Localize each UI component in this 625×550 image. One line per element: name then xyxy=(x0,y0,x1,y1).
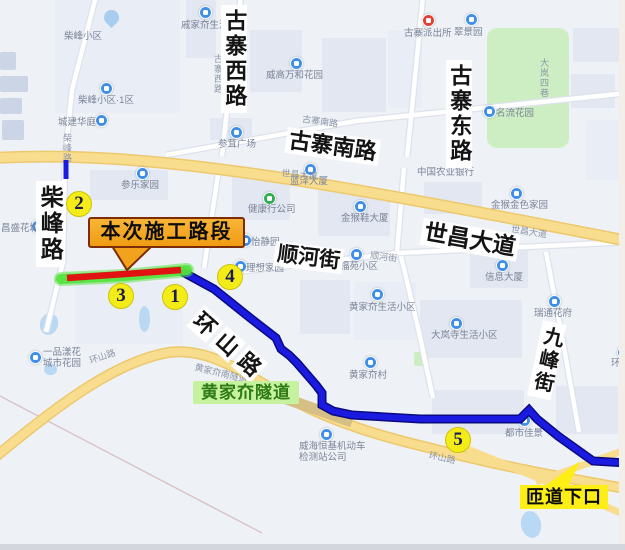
poi-label: 黄家夼生活小区 xyxy=(349,302,416,313)
poi-icon xyxy=(371,288,384,301)
poi-icon xyxy=(234,260,247,273)
poi-label: 健康行公司 xyxy=(248,204,296,215)
poi-label: 瑞通花府 xyxy=(534,308,572,319)
building-block xyxy=(250,30,302,92)
poi-label: 翠景园 xyxy=(454,27,483,38)
construction-callout: 本次施工路段 xyxy=(88,217,245,248)
route-line xyxy=(181,271,625,463)
building-block xyxy=(0,52,16,70)
road-name-layer: 古寨西路古寨东路古寨南路柴峰路世昌大道顺河街环山路九峰街 xyxy=(0,0,625,550)
road-label-small: 环山路 xyxy=(428,450,457,465)
road-label-small: 顺河街 xyxy=(370,250,398,264)
route-marker-3: 3 xyxy=(108,283,134,309)
annotation-layer xyxy=(0,0,625,550)
poi-label: 怡静园 xyxy=(251,237,280,248)
construction-glow xyxy=(61,270,187,279)
callout-pointer xyxy=(112,246,152,270)
poi-icon xyxy=(263,192,276,205)
route-line-outline xyxy=(181,271,625,463)
marker-layer: 12345 xyxy=(0,0,625,550)
construction-glow-inner xyxy=(61,270,187,279)
poi-label: 金猴金色家园 xyxy=(491,200,548,211)
poi-label: 城建华庭 xyxy=(58,117,96,128)
road-label-large: 九峰街 xyxy=(527,320,566,400)
poi-icon xyxy=(450,317,463,330)
police-poi-icon xyxy=(422,14,435,27)
building-block xyxy=(2,120,24,140)
route-marker-5: 5 xyxy=(445,427,471,453)
poi-label: 古寨派出所 xyxy=(404,28,452,39)
window-edge-bottom xyxy=(0,544,625,550)
poi-icon xyxy=(304,163,317,176)
poi-layer: 戚家夼生活小区柴峰小区柴峰小区·1区城建华庭威高万和花园古寨派出所翠景园名流花园… xyxy=(0,0,625,550)
building-block xyxy=(432,390,524,434)
terrain-layer xyxy=(0,0,625,550)
park-area-small xyxy=(414,352,428,366)
poi-icon xyxy=(29,351,42,364)
building-block xyxy=(90,170,168,200)
railway-line xyxy=(0,395,262,533)
building-block xyxy=(420,300,522,358)
ramp-label: 匝道下口 xyxy=(520,485,608,509)
poi-icon xyxy=(95,114,108,127)
park-area xyxy=(487,28,569,148)
building-block xyxy=(354,282,416,340)
poi-label: 威高万和花园 xyxy=(266,70,323,81)
poi-label: 威海恒基机动车 检测站公司 xyxy=(299,441,366,463)
poi-label: 参乐家园 xyxy=(121,180,159,191)
building-block xyxy=(186,0,216,58)
poi-icon xyxy=(350,248,363,261)
road-network xyxy=(0,0,625,550)
poi-label: 信息大厦 xyxy=(485,272,523,283)
road-label-large: 古寨南路 xyxy=(284,127,381,166)
poi-icon xyxy=(483,105,496,118)
pond xyxy=(37,311,60,337)
poi-label: 戚家夼生活小区 xyxy=(181,20,248,31)
map-canvas[interactable]: 戚家夼生活小区柴峰小区柴峰小区·1区城建华庭威高万和花园古寨派出所翠景园名流花园… xyxy=(0,0,625,550)
poi-label: 柴峰小区 xyxy=(64,31,102,42)
road-label-small: 大岚四巷 xyxy=(539,58,549,98)
poi-icon xyxy=(548,295,561,308)
poi-icon xyxy=(354,200,367,213)
poi-label: 大岚寺生活小区 xyxy=(431,330,498,341)
poi-label: 一品漾花 城市花园 xyxy=(43,347,81,369)
window-edge-right xyxy=(619,0,625,550)
building-block xyxy=(470,250,528,288)
road-label-large: 世昌大道 xyxy=(419,218,520,262)
tunnel-label: 黄家夼隧道 xyxy=(193,381,299,404)
poi-label: 名流花园 xyxy=(496,108,534,119)
road-label-small: 世昌大道 xyxy=(281,168,318,181)
poi-icon xyxy=(199,6,212,19)
poi-label: 柴峰小区·1区 xyxy=(78,95,134,106)
poi-label: 昌盛花城 xyxy=(1,223,39,234)
building-block xyxy=(424,182,482,214)
pond-drop xyxy=(101,7,122,28)
road-fill xyxy=(46,0,625,432)
building-block xyxy=(586,120,622,180)
poi-icon xyxy=(100,82,113,95)
pond xyxy=(518,509,543,540)
building-block xyxy=(0,98,22,114)
poi-icon xyxy=(510,187,523,200)
road-label-large: 柴峰路 xyxy=(36,181,63,267)
poi-icon xyxy=(496,259,509,272)
building-block xyxy=(318,190,390,236)
road-casing xyxy=(46,0,625,432)
pond xyxy=(139,306,150,332)
road-label-large: 环山路 xyxy=(187,307,270,385)
poi-icon xyxy=(320,428,333,441)
road-label-small: 世昌大道 xyxy=(510,224,547,240)
route-marker-4: 4 xyxy=(217,264,243,290)
poi-label: 中国农业银行 xyxy=(417,167,474,178)
route-marker-1: 1 xyxy=(162,284,188,310)
poi-icon xyxy=(31,220,44,233)
poi-icon xyxy=(136,167,149,180)
poi-icon xyxy=(364,356,377,369)
poi-label: 理想家园 xyxy=(246,263,284,274)
road-label-small: 古寨西路 xyxy=(213,54,223,94)
construction-segment xyxy=(67,270,181,278)
building-block xyxy=(571,74,615,108)
poi-label: 金猴鞋大厦 xyxy=(341,213,389,224)
poi-icon xyxy=(518,414,531,427)
road-label-large: 古寨东路 xyxy=(446,60,472,168)
road-label-small: 柴峰路 xyxy=(62,133,72,163)
building-block xyxy=(573,28,619,62)
route-marker-2: 2 xyxy=(66,191,92,217)
building-block xyxy=(0,76,28,92)
road-label-small: 环山路 xyxy=(88,348,117,366)
poi-label: 都市佳景 xyxy=(505,428,543,439)
poi-icon xyxy=(230,126,243,139)
building-block xyxy=(300,280,350,334)
poi-label: 福苑小区 xyxy=(340,261,378,272)
building-block xyxy=(388,30,422,108)
building-block xyxy=(556,386,618,434)
road-label-large: 顺河街 xyxy=(273,241,345,274)
building-block xyxy=(210,118,252,140)
pond xyxy=(44,364,57,375)
road-label-large: 古寨西路 xyxy=(221,5,247,113)
building-block xyxy=(75,282,183,344)
poi-icon xyxy=(290,57,303,70)
building-block xyxy=(55,0,180,113)
poi-icon xyxy=(465,13,478,26)
poi-label: 黄家夼村 xyxy=(349,370,387,381)
poi-label: 参茸广场 xyxy=(218,139,256,150)
building-block xyxy=(232,176,290,220)
poi-label: 蓝泽大厦 xyxy=(290,176,328,187)
building-block xyxy=(322,38,386,112)
road-label-small: 古寨南路 xyxy=(302,114,339,129)
